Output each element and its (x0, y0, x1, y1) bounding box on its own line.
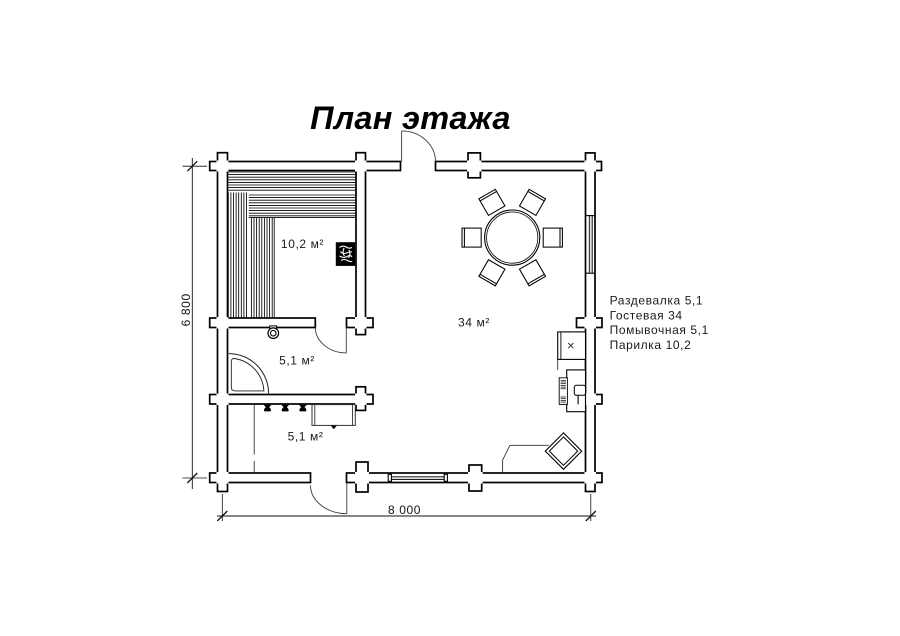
svg-text:Помывочная 5,1: Помывочная 5,1 (610, 323, 709, 337)
svg-text:5,1 м²: 5,1 м² (288, 429, 324, 443)
svg-text:34 м²: 34 м² (458, 315, 490, 329)
svg-text:5,1 м²: 5,1 м² (279, 354, 315, 368)
svg-text:Раздевалка 5,1: Раздевалка 5,1 (610, 294, 704, 308)
svg-text:План этажа: План этажа (310, 100, 511, 136)
svg-text:10,2 м²: 10,2 м² (281, 237, 324, 251)
svg-text:Парилка 10,2: Парилка 10,2 (610, 338, 692, 352)
svg-text:Гостевая 34: Гостевая 34 (610, 308, 683, 322)
svg-text:6 800: 6 800 (179, 293, 193, 326)
svg-text:8 000: 8 000 (388, 503, 421, 517)
